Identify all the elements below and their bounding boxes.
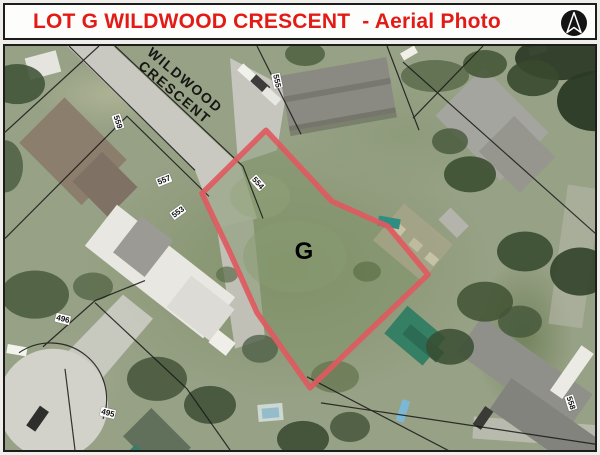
aerial-photo: WILDWOOD CRESCENT G 559 557 555 554 553 …	[3, 44, 597, 452]
page: { "header": { "title": "LOT G WILDWOOD C…	[0, 0, 600, 455]
page-title: LOT G WILDWOOD CRESCENT - Aerial Photo	[5, 10, 501, 34]
lot-g-label: G	[295, 238, 314, 266]
north-arrow-icon	[560, 9, 588, 37]
header-bar: LOT G WILDWOOD CRESCENT - Aerial Photo	[3, 3, 597, 40]
